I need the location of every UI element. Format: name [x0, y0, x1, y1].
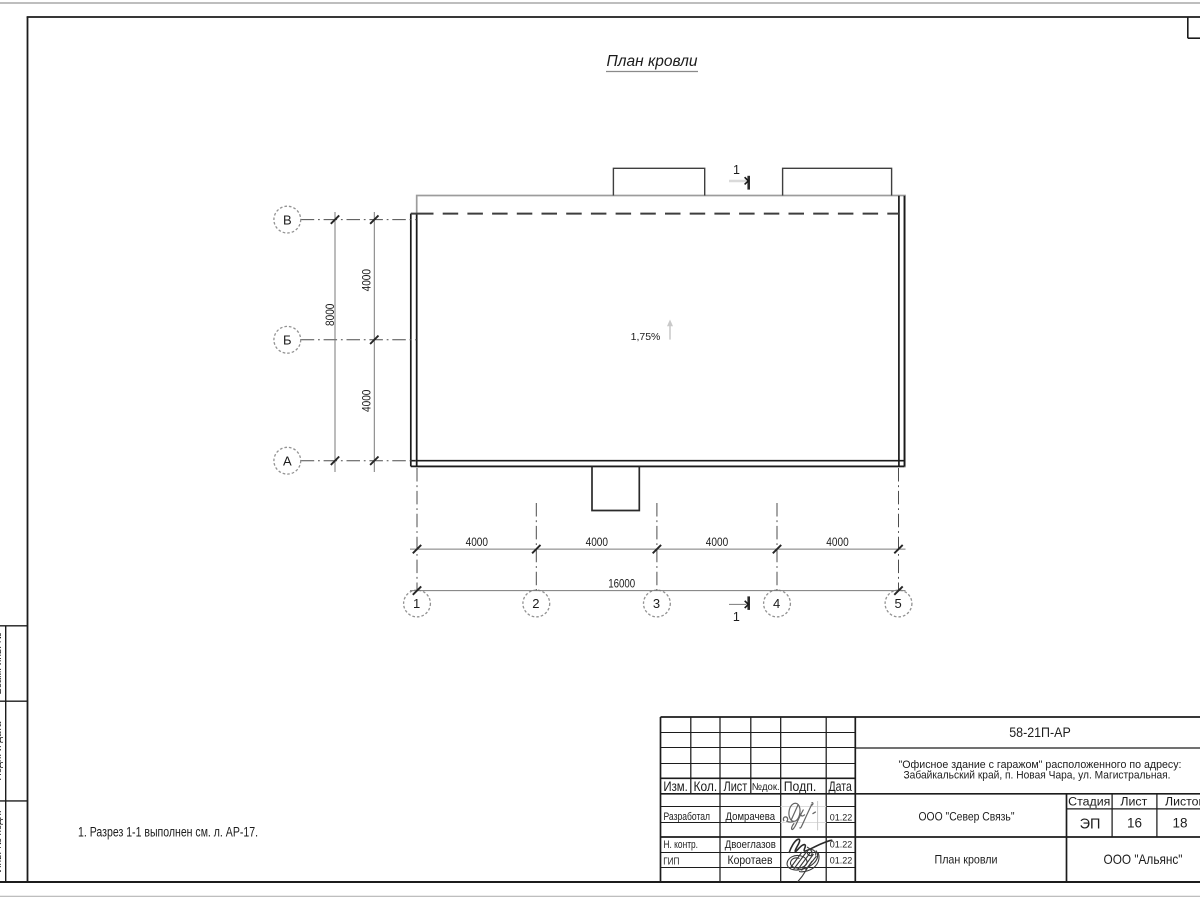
- svg-text:ГИП: ГИП: [663, 855, 679, 867]
- svg-text:1: 1: [733, 610, 740, 624]
- svg-text:ООО "Альянс": ООО "Альянс": [1104, 851, 1183, 867]
- svg-text:8000: 8000: [325, 304, 337, 326]
- svg-text:План кровли: План кровли: [607, 53, 698, 70]
- svg-text:3: 3: [653, 596, 660, 611]
- svg-text:4000: 4000: [362, 269, 374, 291]
- svg-text:Лист: Лист: [1120, 797, 1148, 809]
- svg-text:Изм.: Изм.: [663, 778, 688, 794]
- svg-text:А: А: [283, 453, 292, 468]
- svg-text:Листов: Листов: [1165, 797, 1200, 809]
- svg-text:4000: 4000: [362, 390, 374, 412]
- svg-text:Разработал: Разработал: [664, 811, 711, 823]
- svg-text:Н. контр.: Н. контр.: [664, 839, 699, 851]
- svg-text:Подп.: Подп.: [784, 778, 817, 794]
- svg-text:Двоеглазов: Двоеглазов: [725, 839, 776, 851]
- svg-text:Забайкальский край, п. Новая Ч: Забайкальский край, п. Новая Чара, ул. М…: [904, 769, 1171, 781]
- svg-text:1: 1: [733, 163, 740, 177]
- svg-text:4000: 4000: [586, 537, 608, 549]
- svg-text:1,75%: 1,75%: [631, 331, 661, 343]
- svg-text:01.22: 01.22: [830, 856, 853, 866]
- svg-text:01.22: 01.22: [830, 812, 853, 822]
- svg-text:Подп. и дата: Подп. и дата: [0, 721, 4, 780]
- svg-text:2: 2: [532, 596, 539, 611]
- svg-text:4: 4: [773, 596, 780, 611]
- svg-text:Инв. № подл.: Инв. № подл.: [0, 810, 4, 872]
- svg-text:Взам. инв. №: Взам. инв. №: [0, 632, 4, 694]
- svg-text:План кровли: План кровли: [935, 852, 998, 866]
- svg-text:№док.: №док.: [752, 782, 780, 793]
- svg-text:18: 18: [1172, 816, 1187, 831]
- svg-text:4000: 4000: [466, 537, 488, 549]
- svg-text:ООО "Север Связь": ООО "Север Связь": [919, 809, 1015, 823]
- svg-text:1: 1: [413, 596, 420, 611]
- svg-text:5: 5: [894, 596, 901, 611]
- svg-text:ЭП: ЭП: [1080, 816, 1101, 832]
- svg-text:16000: 16000: [608, 579, 635, 591]
- svg-text:Коротаев: Коротаев: [728, 855, 773, 867]
- svg-text:4000: 4000: [826, 537, 848, 549]
- svg-text:Домрачева: Домрачева: [726, 811, 776, 823]
- svg-text:1. Разрез 1-1 выполнен см. л.: 1. Разрез 1-1 выполнен см. л. АР-17.: [78, 825, 258, 840]
- svg-text:01.22: 01.22: [830, 840, 853, 850]
- svg-text:16: 16: [1127, 816, 1142, 831]
- svg-text:Стадия: Стадия: [1068, 797, 1110, 809]
- svg-text:4000: 4000: [706, 537, 728, 549]
- svg-text:Лист: Лист: [724, 778, 748, 794]
- svg-text:Дата: Дата: [829, 778, 852, 794]
- svg-text:Б: Б: [283, 333, 292, 348]
- svg-text:В: В: [283, 212, 292, 227]
- svg-text:58-21П-АР: 58-21П-АР: [1009, 725, 1071, 740]
- svg-text:Кол.: Кол.: [694, 778, 718, 794]
